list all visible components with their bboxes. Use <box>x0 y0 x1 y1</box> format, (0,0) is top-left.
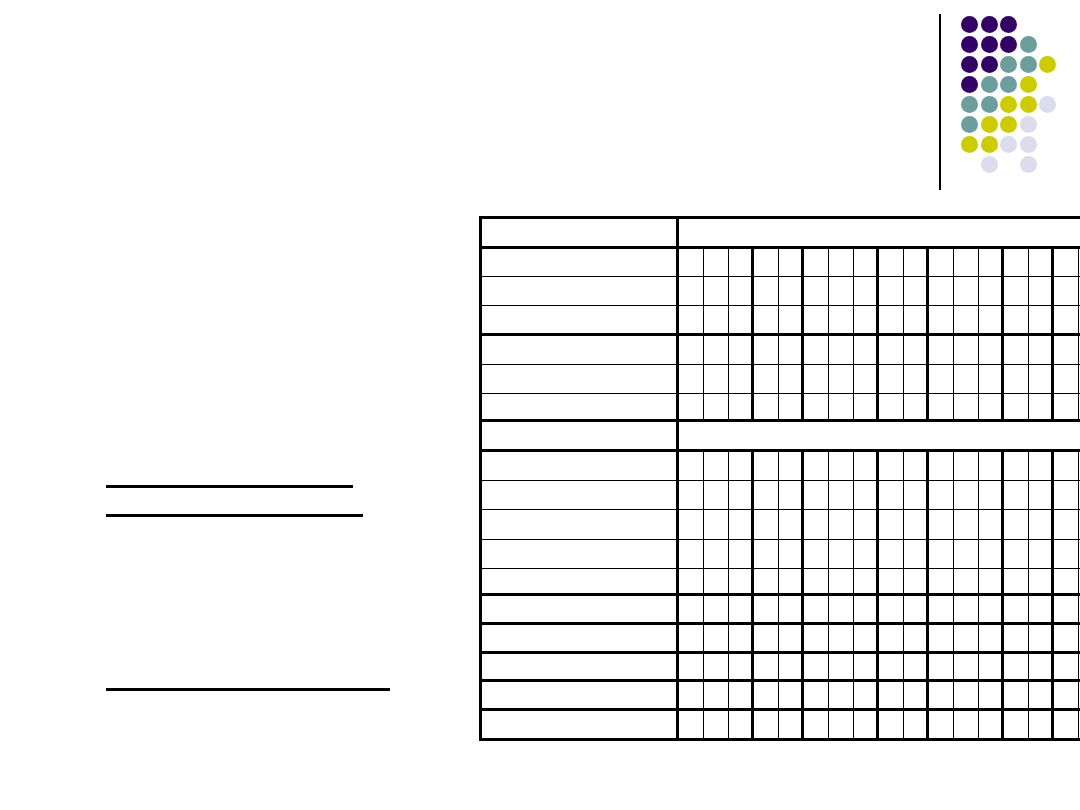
grid-cell <box>829 452 854 480</box>
grid-cell <box>979 625 1004 651</box>
grid-cell <box>954 596 979 622</box>
grid-cell <box>679 336 704 364</box>
grid-cell <box>804 711 829 738</box>
table-row <box>482 569 1080 596</box>
row-label-cell <box>482 569 679 593</box>
grid-cell <box>854 682 879 708</box>
dot <box>960 14 980 34</box>
dot-circle <box>1020 136 1037 153</box>
grid-cell <box>779 394 804 419</box>
grid-cell <box>704 394 729 419</box>
grid-cell <box>1004 365 1029 393</box>
grid-cell <box>829 682 854 708</box>
grid-cell <box>954 540 979 568</box>
grid-cell <box>979 711 1004 738</box>
grid-cell <box>1054 394 1079 419</box>
grid-cell <box>929 596 954 622</box>
grid-cell <box>1004 452 1029 480</box>
row-label-cell <box>482 682 679 708</box>
grid-cell <box>729 682 754 708</box>
dot <box>1019 114 1039 134</box>
grid-cell <box>729 277 754 305</box>
header-span-cell <box>679 422 1080 449</box>
grid-cell <box>904 481 929 509</box>
grid-cell <box>879 336 904 364</box>
grid-cell <box>954 625 979 651</box>
grid-cell <box>679 277 704 305</box>
timeline-cells <box>679 249 1080 276</box>
dot-empty-slot <box>1019 14 1039 34</box>
grid-cell <box>679 249 704 276</box>
dot <box>1038 94 1058 114</box>
grid-cell <box>679 394 704 419</box>
grid-cell <box>854 306 879 333</box>
grid-cell <box>779 365 804 393</box>
grid-cell <box>1004 394 1029 419</box>
header-span-cell <box>679 219 1080 246</box>
dot-circle <box>961 76 978 93</box>
timeline-cells <box>679 682 1080 708</box>
row-label-cell <box>482 625 679 651</box>
grid-cell <box>1004 277 1029 305</box>
table-row <box>482 540 1080 569</box>
grid-cell <box>679 365 704 393</box>
grid-cell <box>1029 394 1054 419</box>
grid-cell <box>1004 596 1029 622</box>
row-label-cell <box>482 219 679 246</box>
table-row <box>482 481 1080 510</box>
grid-cell <box>729 540 754 568</box>
table-row <box>482 336 1080 365</box>
grid-cell <box>754 569 779 593</box>
grid-cell <box>779 682 804 708</box>
grid-cell <box>979 277 1004 305</box>
grid-cell <box>729 249 754 276</box>
grid-cell <box>954 306 979 333</box>
row-label-cell <box>482 306 679 333</box>
dot-empty-slot <box>1038 134 1058 154</box>
grid-cell <box>704 569 729 593</box>
grid-cell <box>879 481 904 509</box>
grid-cell <box>979 336 1004 364</box>
grid-cell <box>954 682 979 708</box>
grid-cell <box>879 277 904 305</box>
grid-cell <box>979 540 1004 568</box>
grid-cell <box>854 569 879 593</box>
table-header-row <box>482 422 1080 452</box>
row-label-cell <box>482 336 679 364</box>
grid-cell <box>729 481 754 509</box>
grid-cell <box>1004 336 1029 364</box>
grid-cell <box>1054 596 1079 622</box>
grid-cell <box>904 510 929 539</box>
grid-cell <box>804 682 829 708</box>
grid-cell <box>954 569 979 593</box>
grid-cell <box>1029 711 1054 738</box>
dot-empty-slot <box>1038 114 1058 134</box>
dot <box>1019 134 1039 154</box>
timeline-cells <box>679 306 1080 333</box>
row-label-cell <box>482 654 679 679</box>
grid-cell <box>1029 452 1054 480</box>
grid-cell <box>829 394 854 419</box>
grid-cell <box>804 625 829 651</box>
grid-cell <box>979 306 1004 333</box>
grid-cell <box>904 306 929 333</box>
dot <box>1019 74 1039 94</box>
grid-cell <box>854 394 879 419</box>
grid-cell <box>904 625 929 651</box>
blank-underline <box>106 514 363 517</box>
grid-cell <box>1029 510 1054 539</box>
grid-cell <box>754 365 779 393</box>
grid-cell <box>704 625 729 651</box>
timeline-cells <box>679 569 1080 593</box>
dot-circle <box>981 76 998 93</box>
grid-cell <box>1029 277 1054 305</box>
grid-cell <box>954 481 979 509</box>
grid-cell <box>829 711 854 738</box>
grid-cell <box>979 452 1004 480</box>
dot-circle <box>1000 136 1017 153</box>
grid-cell <box>904 336 929 364</box>
table-row <box>482 394 1080 422</box>
grid-cell <box>804 306 829 333</box>
table-row <box>482 510 1080 540</box>
timeline-cells <box>679 481 1080 509</box>
dot-circle <box>981 16 998 33</box>
grid-cell <box>704 277 729 305</box>
grid-cell <box>829 306 854 333</box>
grid-cell <box>779 625 804 651</box>
grid-cell <box>829 540 854 568</box>
merged-header-cell <box>679 422 1080 449</box>
grid-cell <box>1029 625 1054 651</box>
grid-cell <box>679 510 704 539</box>
timeline-cells <box>679 596 1080 622</box>
grid-cell <box>754 394 779 419</box>
grid-cell <box>1054 365 1079 393</box>
grid-cell <box>1004 625 1029 651</box>
grid-cell <box>754 306 779 333</box>
row-label-cell <box>482 422 679 449</box>
grid-cell <box>854 540 879 568</box>
dot <box>980 134 1000 154</box>
dot <box>960 34 980 54</box>
dot-circle <box>961 36 978 53</box>
grid-cell <box>804 394 829 419</box>
grid-cell <box>929 625 954 651</box>
grid-cell <box>854 654 879 679</box>
dot-circle <box>981 56 998 73</box>
dot-circle <box>1000 56 1017 73</box>
grid-cell <box>1029 306 1054 333</box>
grid-cell <box>754 711 779 738</box>
grid-cell <box>1054 625 1079 651</box>
grid-cell <box>754 452 779 480</box>
grid-cell <box>1054 452 1079 480</box>
row-label-cell <box>482 540 679 568</box>
grid-cell <box>929 365 954 393</box>
timeline-cells <box>679 510 1080 539</box>
grid-cell <box>929 654 954 679</box>
grid-cell <box>879 365 904 393</box>
grid-cell <box>754 654 779 679</box>
dot <box>980 94 1000 114</box>
grid-cell <box>1029 365 1054 393</box>
grid-cell <box>704 540 729 568</box>
grid-cell <box>829 277 854 305</box>
dot-circle <box>981 96 998 113</box>
dot-circle <box>981 136 998 153</box>
grid-cell <box>804 540 829 568</box>
grid-cell <box>704 452 729 480</box>
grid-cell <box>1054 540 1079 568</box>
table-row <box>482 654 1080 682</box>
grid-cell <box>704 306 729 333</box>
grid-cell <box>979 596 1004 622</box>
grid-cell <box>729 306 754 333</box>
timeline-cells <box>679 654 1080 679</box>
grid-cell <box>729 625 754 651</box>
grid-cell <box>829 510 854 539</box>
grid-cell <box>1004 510 1029 539</box>
grid-cell <box>779 596 804 622</box>
grid-cell <box>904 249 929 276</box>
grid-cell <box>779 336 804 364</box>
dot-circle <box>1020 156 1037 173</box>
dot-circle <box>1000 96 1017 113</box>
grid-cell <box>804 596 829 622</box>
vertical-divider-line <box>939 14 941 190</box>
grid-cell <box>904 394 929 419</box>
grid-cell <box>929 336 954 364</box>
dot <box>1038 54 1058 74</box>
grid-cell <box>754 540 779 568</box>
grid-cell <box>754 625 779 651</box>
grid-cell <box>1054 569 1079 593</box>
dot <box>980 54 1000 74</box>
dot-circle <box>1000 116 1017 133</box>
grid-cell <box>879 306 904 333</box>
dot <box>980 14 1000 34</box>
grid-cell <box>679 596 704 622</box>
table-row <box>482 596 1080 625</box>
dot-circle <box>981 36 998 53</box>
grid-cell <box>1004 682 1029 708</box>
grid-cell <box>854 277 879 305</box>
dot-circle <box>961 136 978 153</box>
grid-cell <box>904 365 929 393</box>
grid-cell <box>779 510 804 539</box>
row-label-cell <box>482 711 679 738</box>
grid-cell <box>954 452 979 480</box>
grid-cell <box>954 336 979 364</box>
dot-empty-slot <box>1038 154 1058 174</box>
grid-cell <box>779 711 804 738</box>
grid-cell <box>679 569 704 593</box>
grid-cell <box>954 711 979 738</box>
grid-cell <box>1029 682 1054 708</box>
dot-circle <box>1000 76 1017 93</box>
grid-cell <box>679 306 704 333</box>
grid-cell <box>779 452 804 480</box>
grid-cell <box>779 569 804 593</box>
timeline-cells <box>679 365 1080 393</box>
grid-cell <box>879 682 904 708</box>
grid-cell <box>779 277 804 305</box>
timeline-cells <box>679 452 1080 480</box>
grid-cell <box>729 596 754 622</box>
dot <box>980 34 1000 54</box>
row-label-cell <box>482 510 679 539</box>
grid-cell <box>1029 596 1054 622</box>
grid-cell <box>804 569 829 593</box>
grid-cell <box>754 249 779 276</box>
grid-cell <box>879 625 904 651</box>
dot <box>999 74 1019 94</box>
grid-cell <box>704 336 729 364</box>
grid-cell <box>929 452 954 480</box>
grid-cell <box>704 481 729 509</box>
grid-cell <box>929 569 954 593</box>
grid-cell <box>679 711 704 738</box>
dot-circle <box>1020 96 1037 113</box>
grid-cell <box>729 654 754 679</box>
grid-cell <box>1054 481 1079 509</box>
grid-cell <box>704 365 729 393</box>
grid-cell <box>704 711 729 738</box>
grid-cell <box>754 481 779 509</box>
grid-cell <box>879 452 904 480</box>
grid-cell <box>904 452 929 480</box>
dot-circle <box>981 116 998 133</box>
timeline-cells <box>679 625 1080 651</box>
grid-cell <box>979 682 1004 708</box>
table-row <box>482 306 1080 336</box>
grid-cell <box>854 481 879 509</box>
table-header-row <box>482 219 1080 249</box>
grid-cell <box>679 682 704 708</box>
dot-circle <box>961 116 978 133</box>
grid-cell <box>879 654 904 679</box>
grid-cell <box>854 711 879 738</box>
grid-cell <box>754 510 779 539</box>
timeline-cells <box>679 336 1080 364</box>
grid-cell <box>929 277 954 305</box>
table-row <box>482 452 1080 481</box>
dot <box>980 154 1000 174</box>
slide-canvas: { "slide": { "background": "#ffffff", "w… <box>0 0 1080 810</box>
row-label-cell <box>482 452 679 480</box>
grid-cell <box>979 654 1004 679</box>
grid-cell <box>929 249 954 276</box>
dot-circle <box>1020 56 1037 73</box>
grid-cell <box>1004 306 1029 333</box>
timeline-cells <box>679 540 1080 568</box>
dot-circle <box>1039 56 1056 73</box>
grid-cell <box>979 510 1004 539</box>
grid-cell <box>1054 249 1079 276</box>
grid-cell <box>1029 249 1054 276</box>
dot-circle <box>1039 96 1056 113</box>
grid-cell <box>754 336 779 364</box>
dot-empty-slot <box>1038 14 1058 34</box>
grid-cell <box>1004 711 1029 738</box>
grid-cell <box>954 394 979 419</box>
grid-cell <box>1004 481 1029 509</box>
grid-cell <box>804 249 829 276</box>
dot <box>999 14 1019 34</box>
dot-empty-slot <box>1038 74 1058 94</box>
grid-cell <box>729 569 754 593</box>
row-label-cell <box>482 394 679 419</box>
row-label-cell <box>482 481 679 509</box>
grid-cell <box>954 510 979 539</box>
decorative-dot-grid <box>960 14 1058 174</box>
grid-cell <box>954 654 979 679</box>
timeline-cells <box>679 394 1080 419</box>
grid-cell <box>1029 336 1054 364</box>
grid-cell <box>779 481 804 509</box>
grid-cell <box>954 277 979 305</box>
grid-cell <box>679 654 704 679</box>
grid-cell <box>704 510 729 539</box>
dot-empty-slot <box>1038 34 1058 54</box>
dot <box>999 134 1019 154</box>
grid-cell <box>729 394 754 419</box>
grid-cell <box>679 481 704 509</box>
grid-cell <box>804 481 829 509</box>
grid-cell <box>1029 654 1054 679</box>
dot-circle <box>981 156 998 173</box>
grid-cell <box>854 336 879 364</box>
table-row <box>482 277 1080 306</box>
grid-cell <box>804 654 829 679</box>
grid-cell <box>1054 682 1079 708</box>
grid-cell <box>804 277 829 305</box>
timeline-cells <box>679 277 1080 305</box>
grid-cell <box>929 540 954 568</box>
grid-cell <box>929 711 954 738</box>
grid-cell <box>879 540 904 568</box>
grid-cell <box>829 569 854 593</box>
grid-cell <box>679 540 704 568</box>
dot <box>960 134 980 154</box>
grid-cell <box>829 249 854 276</box>
dot <box>1019 94 1039 114</box>
grid-cell <box>854 596 879 622</box>
schedule-table <box>479 216 1080 741</box>
grid-cell <box>904 654 929 679</box>
grid-cell <box>704 249 729 276</box>
dot <box>999 34 1019 54</box>
grid-cell <box>1029 540 1054 568</box>
grid-cell <box>1054 277 1079 305</box>
grid-cell <box>979 481 1004 509</box>
row-label-cell <box>482 249 679 276</box>
grid-cell <box>729 510 754 539</box>
grid-cell <box>854 510 879 539</box>
dot <box>960 94 980 114</box>
grid-cell <box>1004 569 1029 593</box>
table-row <box>482 365 1080 394</box>
dot <box>1019 34 1039 54</box>
dot-circle <box>961 96 978 113</box>
grid-cell <box>779 306 804 333</box>
dot-circle <box>961 56 978 73</box>
grid-cell <box>1004 249 1029 276</box>
